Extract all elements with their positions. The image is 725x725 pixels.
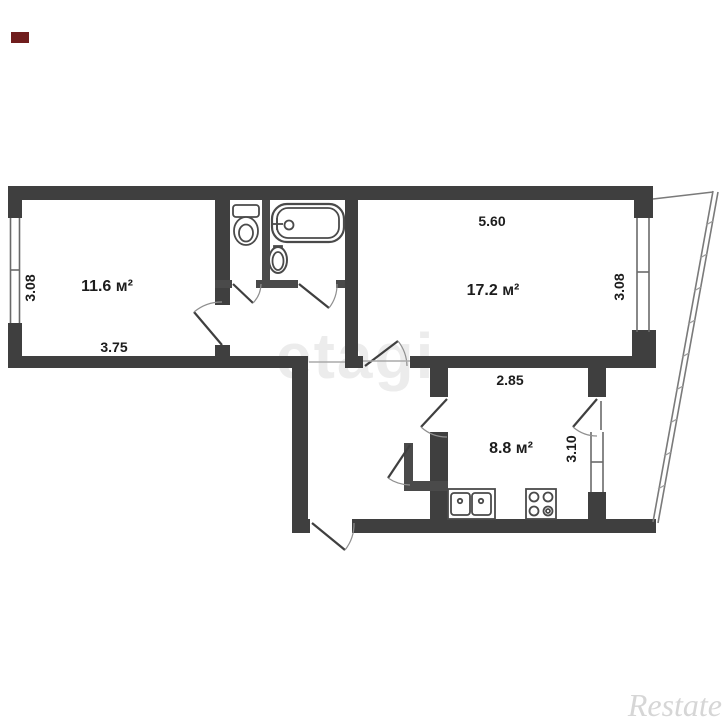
floorplan-page: etagi — [0, 0, 725, 725]
kitchen-door — [421, 399, 447, 437]
toilet-icon — [233, 205, 259, 245]
bedroom-window — [637, 218, 649, 332]
bedroom-area-label: 17.2 м² — [467, 282, 520, 299]
stove-icon — [526, 489, 556, 519]
kitchen-area-label: 8.8 м² — [489, 440, 533, 457]
bedroom-width-label: 5.60 — [478, 213, 505, 229]
bathroom-door — [299, 284, 337, 308]
living-room-height-label: 3.08 — [22, 274, 38, 301]
kitchen-window — [591, 432, 603, 492]
bedroom-height-label: 3.08 — [611, 273, 627, 300]
living-room-window — [11, 218, 20, 323]
floorplan-drawing: etagi — [0, 0, 725, 725]
living-room-area-label: 11.6 м² — [81, 278, 133, 295]
kitchen-height-label: 3.10 — [563, 435, 579, 462]
entrance-door — [312, 523, 354, 550]
sink-icon — [269, 246, 287, 273]
living-room-width-label: 3.75 — [100, 339, 127, 355]
loggia-glazing — [653, 191, 718, 523]
corner-mark — [11, 32, 29, 43]
kitchen-sink-icon — [448, 489, 495, 519]
kitchen-width-label: 2.85 — [496, 372, 523, 388]
watermark-restate: Restate — [627, 687, 722, 723]
bathtub-icon — [271, 204, 344, 242]
balcony-door — [573, 399, 601, 436]
living-room-door — [194, 302, 222, 345]
